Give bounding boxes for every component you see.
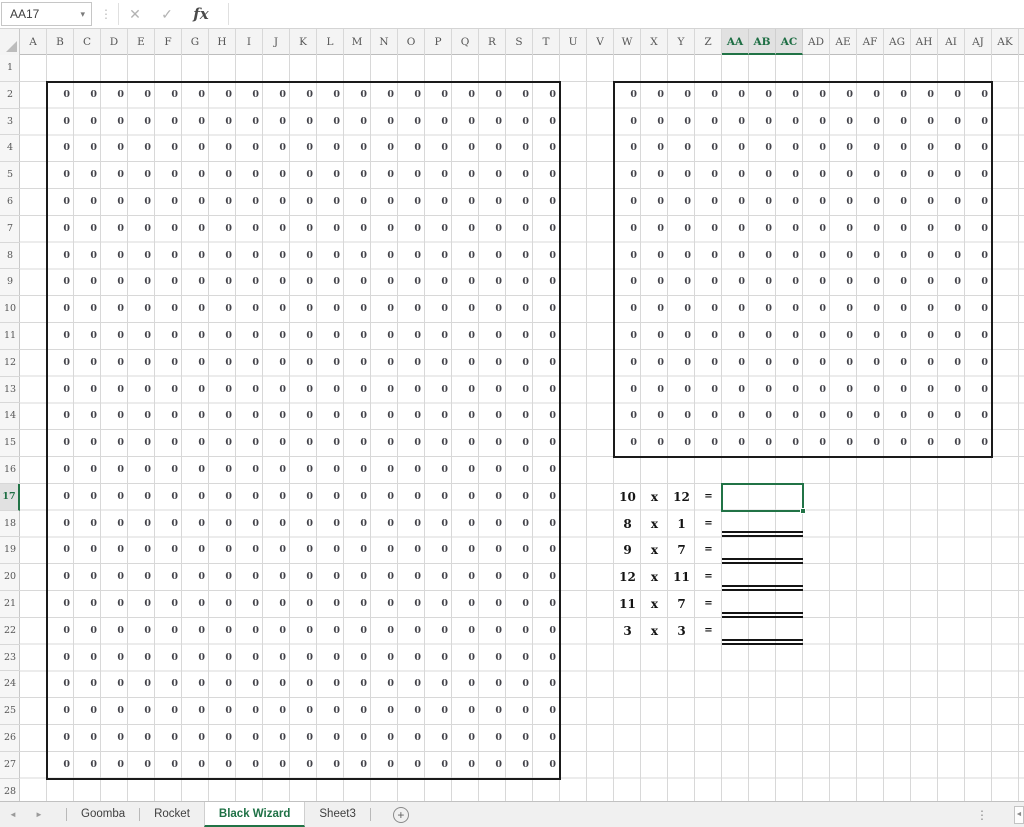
cell[interactable]: 0 [614,323,641,350]
cell[interactable]: 0 [398,698,425,725]
cell[interactable]: 0 [47,109,74,136]
cell[interactable]: 0 [344,564,371,591]
cell[interactable]: 0 [641,162,668,189]
cell[interactable]: 0 [857,162,884,189]
cell[interactable]: 0 [128,350,155,377]
cell[interactable]: 0 [182,162,209,189]
cell[interactable]: 0 [452,645,479,672]
cell[interactable]: 0 [857,135,884,162]
cell[interactable]: 0 [425,484,452,511]
cell[interactable]: 0 [776,350,803,377]
cell[interactable]: 0 [209,725,236,752]
cell[interactable]: 0 [101,591,128,618]
cell[interactable]: 0 [398,645,425,672]
cell[interactable]: 0 [128,109,155,136]
cell[interactable]: 0 [209,698,236,725]
cell[interactable]: 0 [425,189,452,216]
column-header-B[interactable]: B [47,29,74,55]
formula-bar-grip-icon[interactable]: ⋮ [100,4,112,24]
cell[interactable]: 0 [533,243,560,270]
cell[interactable]: 0 [398,135,425,162]
cell[interactable]: 0 [74,564,101,591]
cell[interactable]: 0 [236,109,263,136]
cell[interactable]: 0 [128,457,155,484]
cell[interactable]: 0 [425,564,452,591]
cell[interactable]: 0 [209,671,236,698]
cell[interactable]: 0 [776,403,803,430]
cell[interactable]: 0 [830,430,857,457]
row-header-15[interactable]: 15 [0,430,20,457]
cell[interactable]: 0 [344,82,371,109]
cell[interactable]: 0 [479,216,506,243]
cell[interactable]: 0 [101,752,128,779]
cell[interactable]: 0 [290,109,317,136]
cell[interactable]: 0 [425,216,452,243]
cell[interactable]: 0 [263,243,290,270]
cell[interactable]: 0 [884,296,911,323]
cell[interactable]: 0 [533,350,560,377]
cell[interactable]: 0 [74,403,101,430]
cell[interactable]: 0 [830,243,857,270]
name-box[interactable]: AA17 ▾ [1,2,92,26]
formula-input[interactable] [229,0,1024,28]
cell[interactable]: 0 [209,564,236,591]
cell[interactable]: 0 [371,323,398,350]
cell[interactable]: 0 [506,162,533,189]
cell[interactable]: 0 [452,162,479,189]
cell[interactable]: 0 [695,430,722,457]
cell[interactable]: 0 [47,511,74,538]
cell[interactable]: 0 [317,82,344,109]
cell[interactable]: 0 [398,82,425,109]
cell[interactable]: 0 [614,243,641,270]
cell[interactable]: 0 [371,725,398,752]
cell[interactable]: 0 [425,403,452,430]
cell[interactable]: 0 [641,216,668,243]
cell[interactable]: 0 [317,162,344,189]
row-header-5[interactable]: 5 [0,162,20,189]
cell[interactable]: 0 [830,162,857,189]
cell[interactable]: 0 [317,189,344,216]
cell[interactable]: 0 [128,403,155,430]
cell[interactable]: 0 [506,269,533,296]
cell[interactable]: 0 [695,403,722,430]
cell[interactable]: 0 [911,350,938,377]
row-header-26[interactable]: 26 [0,725,20,752]
cell[interactable]: 0 [722,243,749,270]
cell[interactable]: 0 [317,484,344,511]
cell[interactable]: 0 [938,109,965,136]
cell[interactable]: 0 [263,698,290,725]
cell[interactable]: 0 [749,350,776,377]
column-header-D[interactable]: D [101,29,128,55]
cell[interactable]: 0 [884,243,911,270]
cell[interactable]: 0 [101,135,128,162]
cell[interactable]: 0 [749,216,776,243]
cell[interactable]: 0 [965,323,992,350]
cell[interactable]: 0 [479,457,506,484]
cell[interactable]: 0 [128,698,155,725]
cell[interactable]: 0 [182,296,209,323]
cell[interactable]: 0 [371,377,398,404]
cell[interactable]: 0 [263,135,290,162]
column-header-O[interactable]: O [398,29,425,55]
cell[interactable]: 0 [47,377,74,404]
column-header-AB[interactable]: AB [749,29,776,55]
cell[interactable]: 0 [209,752,236,779]
column-header-Y[interactable]: Y [668,29,695,55]
cell[interactable]: 0 [965,82,992,109]
cell[interactable]: 0 [911,109,938,136]
cell[interactable]: 0 [425,618,452,645]
cell[interactable]: 0 [776,109,803,136]
cell[interactable]: 0 [506,403,533,430]
cell[interactable]: 0 [776,430,803,457]
cell[interactable]: 0 [533,537,560,564]
cell[interactable]: 0 [101,537,128,564]
cell[interactable]: 0 [938,296,965,323]
cell[interactable]: 0 [506,135,533,162]
cell[interactable]: 0 [425,698,452,725]
cell[interactable]: 0 [155,725,182,752]
cell[interactable]: 0 [533,162,560,189]
cell[interactable]: 0 [128,591,155,618]
cell[interactable]: 0 [209,109,236,136]
cell[interactable]: 0 [533,698,560,725]
cell[interactable]: 0 [128,618,155,645]
cell[interactable]: 0 [155,537,182,564]
cell[interactable]: 0 [533,403,560,430]
problem-factor1[interactable]: 12 [614,564,641,591]
cell[interactable]: 0 [533,564,560,591]
cell[interactable]: 0 [911,216,938,243]
cell[interactable]: 0 [317,350,344,377]
problem-factor2[interactable]: 7 [668,591,695,618]
cell[interactable]: 0 [938,162,965,189]
cell[interactable]: 0 [74,109,101,136]
cell[interactable]: 0 [965,296,992,323]
cell[interactable]: 0 [668,269,695,296]
cell[interactable]: 0 [209,403,236,430]
cell[interactable]: 0 [398,109,425,136]
cell[interactable]: 0 [884,216,911,243]
cell[interactable]: 0 [938,216,965,243]
cell[interactable]: 0 [182,511,209,538]
cell[interactable]: 0 [938,323,965,350]
cell[interactable]: 0 [344,537,371,564]
cell[interactable]: 0 [209,82,236,109]
cell[interactable]: 0 [830,216,857,243]
cell[interactable]: 0 [101,216,128,243]
cell[interactable]: 0 [317,591,344,618]
cell[interactable]: 0 [722,162,749,189]
cell[interactable]: 0 [776,162,803,189]
cell[interactable]: 0 [344,189,371,216]
cell[interactable]: 0 [938,189,965,216]
cell[interactable]: 0 [209,350,236,377]
row-header-10[interactable]: 10 [0,296,20,323]
cell[interactable]: 0 [938,135,965,162]
cell[interactable]: 0 [101,323,128,350]
cell[interactable]: 0 [641,135,668,162]
cell[interactable]: 0 [263,162,290,189]
cell[interactable]: 0 [101,564,128,591]
cell[interactable]: 0 [263,511,290,538]
cell[interactable]: 0 [857,216,884,243]
cell[interactable]: 0 [830,377,857,404]
cell[interactable]: 0 [317,377,344,404]
cell[interactable]: 0 [479,350,506,377]
cell[interactable]: 0 [236,752,263,779]
cell[interactable]: 0 [47,564,74,591]
cell[interactable]: 0 [641,109,668,136]
cell[interactable]: 0 [803,109,830,136]
cell[interactable]: 0 [290,671,317,698]
multiply-sign[interactable]: x [641,618,668,645]
cell[interactable]: 0 [857,243,884,270]
cell[interactable]: 0 [344,377,371,404]
column-header-H[interactable]: H [209,29,236,55]
cell[interactable]: 0 [263,109,290,136]
cell[interactable]: 0 [884,269,911,296]
cell[interactable]: 0 [263,645,290,672]
cell[interactable]: 0 [533,189,560,216]
cell[interactable]: 0 [506,243,533,270]
cell[interactable]: 0 [749,82,776,109]
problem-factor1[interactable]: 3 [614,618,641,645]
cell[interactable]: 0 [209,537,236,564]
cell[interactable]: 0 [371,564,398,591]
cell[interactable]: 0 [101,82,128,109]
cell[interactable]: 0 [398,671,425,698]
cell[interactable]: 0 [263,484,290,511]
cell[interactable]: 0 [425,82,452,109]
cell[interactable]: 0 [695,296,722,323]
cell[interactable]: 0 [398,323,425,350]
multiply-sign[interactable]: x [641,511,668,538]
cell[interactable]: 0 [155,350,182,377]
cell[interactable]: 0 [209,216,236,243]
cell[interactable]: 0 [614,109,641,136]
cell[interactable]: 0 [614,377,641,404]
row-header-6[interactable]: 6 [0,189,20,216]
cell[interactable]: 0 [452,511,479,538]
cell[interactable]: 0 [182,135,209,162]
cell[interactable]: 0 [776,189,803,216]
cell[interactable]: 0 [668,430,695,457]
cell[interactable]: 0 [155,671,182,698]
cell[interactable]: 0 [344,109,371,136]
cell[interactable]: 0 [263,430,290,457]
cell[interactable]: 0 [479,189,506,216]
row-header-2[interactable]: 2 [0,82,20,109]
cell[interactable]: 0 [236,484,263,511]
cell[interactable]: 0 [290,82,317,109]
cell[interactable]: 0 [479,484,506,511]
cell[interactable]: 0 [209,591,236,618]
cell[interactable]: 0 [749,323,776,350]
cell[interactable]: 0 [263,537,290,564]
cell[interactable]: 0 [290,135,317,162]
cell[interactable]: 0 [506,377,533,404]
cell[interactable]: 0 [155,564,182,591]
cell[interactable]: 0 [722,296,749,323]
cell[interactable]: 0 [182,82,209,109]
cell[interactable]: 0 [47,537,74,564]
cell[interactable]: 0 [74,484,101,511]
cell[interactable]: 0 [47,671,74,698]
cell[interactable]: 0 [641,350,668,377]
row-header-4[interactable]: 4 [0,135,20,162]
cell[interactable]: 0 [290,216,317,243]
row-header-22[interactable]: 22 [0,618,20,645]
cell[interactable]: 0 [74,430,101,457]
cell[interactable]: 0 [965,109,992,136]
cell[interactable]: 0 [911,377,938,404]
row-header-18[interactable]: 18 [0,511,20,538]
cell[interactable]: 0 [290,162,317,189]
cell[interactable]: 0 [398,618,425,645]
cell[interactable]: 0 [695,162,722,189]
column-header-X[interactable]: X [641,29,668,55]
cell[interactable]: 0 [965,377,992,404]
cell[interactable]: 0 [263,189,290,216]
cell[interactable]: 0 [830,296,857,323]
cell[interactable]: 0 [452,135,479,162]
column-header-L[interactable]: L [317,29,344,55]
cell[interactable]: 0 [506,698,533,725]
cell[interactable]: 0 [965,430,992,457]
cell[interactable]: 0 [479,323,506,350]
column-header-AI[interactable]: AI [938,29,965,55]
sheet-tab-sheet3[interactable]: Sheet3 [305,802,369,827]
cell[interactable]: 0 [803,269,830,296]
cell[interactable]: 0 [317,296,344,323]
column-header-AA[interactable]: AA [722,29,749,55]
cell[interactable]: 0 [74,457,101,484]
cell[interactable]: 0 [452,564,479,591]
cell[interactable]: 0 [857,323,884,350]
cell[interactable]: 0 [479,645,506,672]
cell[interactable]: 0 [101,109,128,136]
cell[interactable]: 0 [371,537,398,564]
cell[interactable]: 0 [614,403,641,430]
cell[interactable]: 0 [371,350,398,377]
cell[interactable]: 0 [236,135,263,162]
cell[interactable]: 0 [236,189,263,216]
cell[interactable]: 0 [425,243,452,270]
cell[interactable]: 0 [911,189,938,216]
cell[interactable]: 0 [209,484,236,511]
cell[interactable]: 0 [155,135,182,162]
cell[interactable]: 0 [101,350,128,377]
cell[interactable]: 0 [614,350,641,377]
cell[interactable]: 0 [371,511,398,538]
cell[interactable]: 0 [74,269,101,296]
cell[interactable]: 0 [668,82,695,109]
cell[interactable]: 0 [128,189,155,216]
cell[interactable]: 0 [911,135,938,162]
cell[interactable]: 0 [695,109,722,136]
cell[interactable]: 0 [398,537,425,564]
cell[interactable]: 0 [317,109,344,136]
cell[interactable]: 0 [128,752,155,779]
cell[interactable]: 0 [398,403,425,430]
cell[interactable]: 0 [722,323,749,350]
cell[interactable]: 0 [614,82,641,109]
cell[interactable]: 0 [884,189,911,216]
cell[interactable]: 0 [452,618,479,645]
row-header-12[interactable]: 12 [0,350,20,377]
cell[interactable]: 0 [344,135,371,162]
cell[interactable]: 0 [182,243,209,270]
cell[interactable]: 0 [263,403,290,430]
cell[interactable]: 0 [722,109,749,136]
cell[interactable]: 0 [938,269,965,296]
multiply-sign[interactable]: x [641,537,668,564]
multiply-sign[interactable]: x [641,564,668,591]
cell[interactable]: 0 [290,537,317,564]
cell[interactable]: 0 [236,323,263,350]
cell[interactable]: 0 [398,511,425,538]
cell[interactable]: 0 [398,725,425,752]
cell[interactable]: 0 [641,377,668,404]
cell[interactable]: 0 [398,216,425,243]
cell[interactable]: 0 [452,430,479,457]
cell[interactable]: 0 [425,511,452,538]
cell[interactable]: 0 [425,430,452,457]
cell[interactable]: 0 [722,189,749,216]
cell[interactable]: 0 [182,725,209,752]
multiply-sign[interactable]: x [641,484,668,511]
cell[interactable]: 0 [425,323,452,350]
cell[interactable]: 0 [101,511,128,538]
cell[interactable]: 0 [74,671,101,698]
problem-factor1[interactable]: 9 [614,537,641,564]
cell[interactable]: 0 [452,296,479,323]
cell[interactable]: 0 [479,725,506,752]
cell[interactable]: 0 [479,243,506,270]
row-header-7[interactable]: 7 [0,216,20,243]
column-header-N[interactable]: N [371,29,398,55]
cell[interactable]: 0 [668,243,695,270]
cell[interactable]: 0 [101,698,128,725]
cell[interactable]: 0 [479,618,506,645]
cell[interactable]: 0 [236,511,263,538]
cell[interactable]: 0 [371,296,398,323]
cell[interactable]: 0 [695,377,722,404]
cell[interactable]: 0 [290,403,317,430]
cell[interactable]: 0 [398,752,425,779]
cell[interactable]: 0 [857,189,884,216]
cell[interactable]: 0 [749,162,776,189]
cell[interactable]: 0 [47,162,74,189]
column-header-K[interactable]: K [290,29,317,55]
cell[interactable]: 0 [182,671,209,698]
cell[interactable]: 0 [398,269,425,296]
cell[interactable]: 0 [128,725,155,752]
cell[interactable]: 0 [425,350,452,377]
cell[interactable]: 0 [722,350,749,377]
cell[interactable]: 0 [155,403,182,430]
cell[interactable]: 0 [371,109,398,136]
cell[interactable]: 0 [479,109,506,136]
equals-sign[interactable]: = [695,618,722,645]
cell[interactable]: 0 [533,671,560,698]
cell[interactable]: 0 [857,430,884,457]
cell[interactable]: 0 [371,82,398,109]
cell[interactable]: 0 [74,350,101,377]
